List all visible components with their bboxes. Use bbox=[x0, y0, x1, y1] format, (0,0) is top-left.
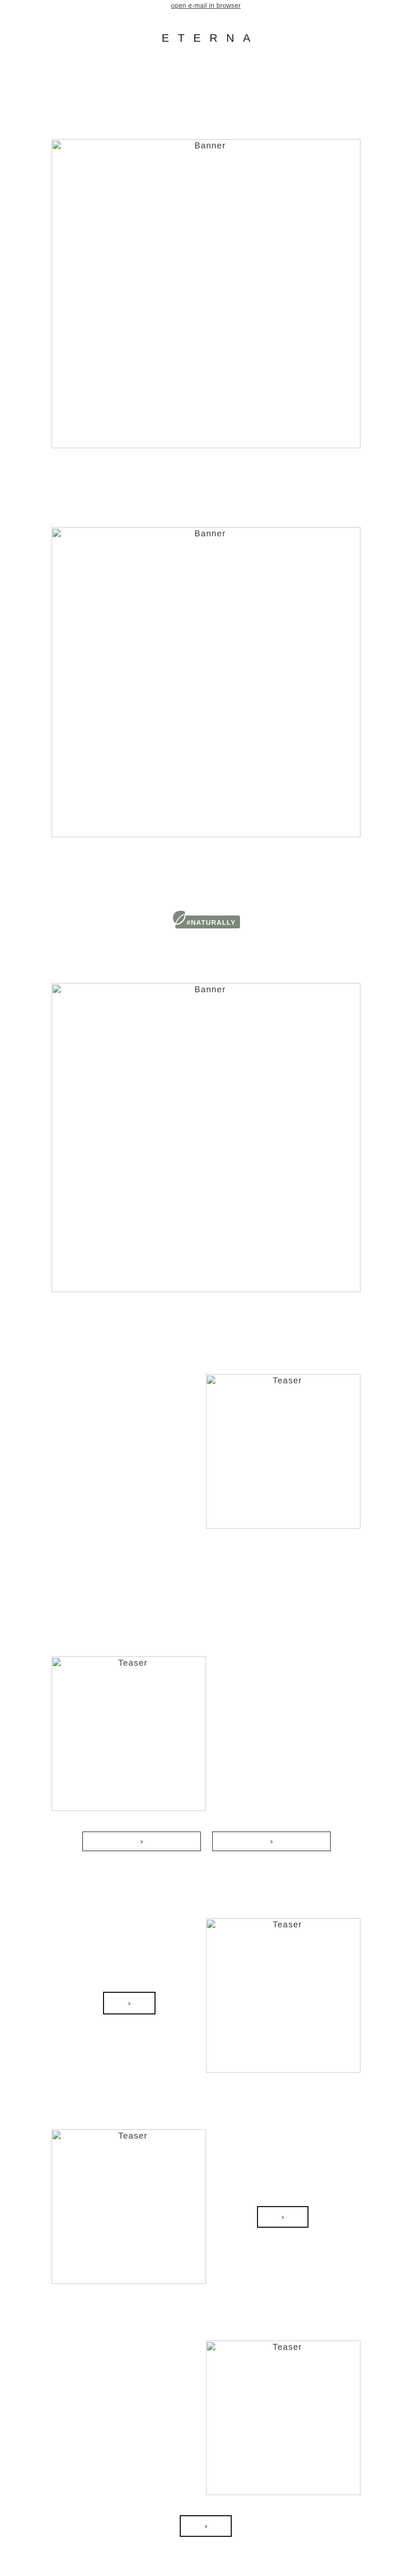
svg-text:#NATURALLY: #NATURALLY bbox=[186, 919, 236, 926]
